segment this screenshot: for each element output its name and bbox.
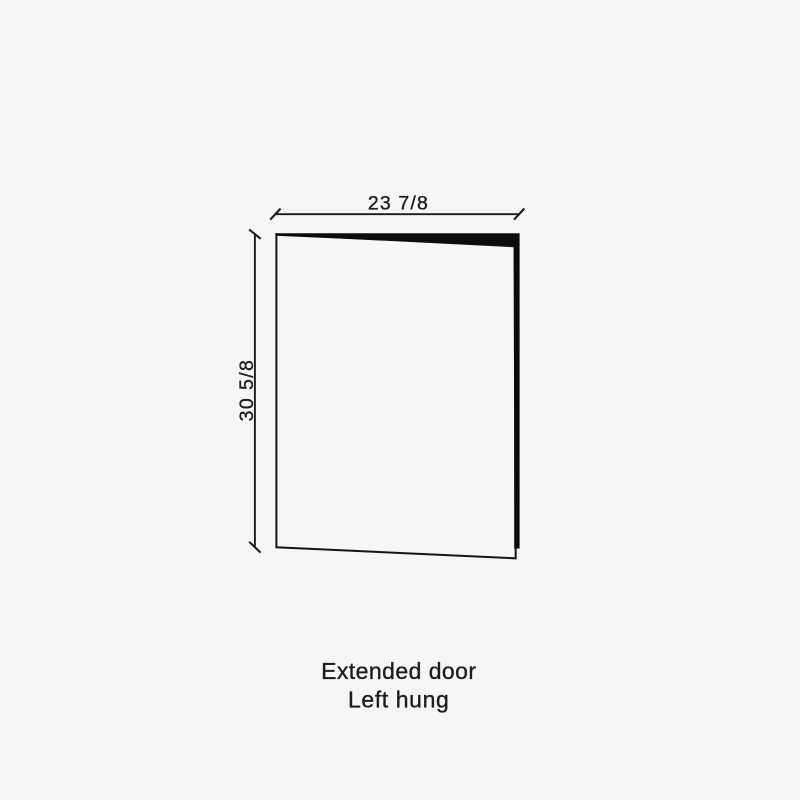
svg-text:Left hung: Left hung bbox=[348, 687, 449, 713]
svg-text:Extended door: Extended door bbox=[321, 658, 476, 684]
svg-text:30 5/8: 30 5/8 bbox=[236, 359, 258, 422]
svg-text:23 7/8: 23 7/8 bbox=[368, 193, 429, 215]
